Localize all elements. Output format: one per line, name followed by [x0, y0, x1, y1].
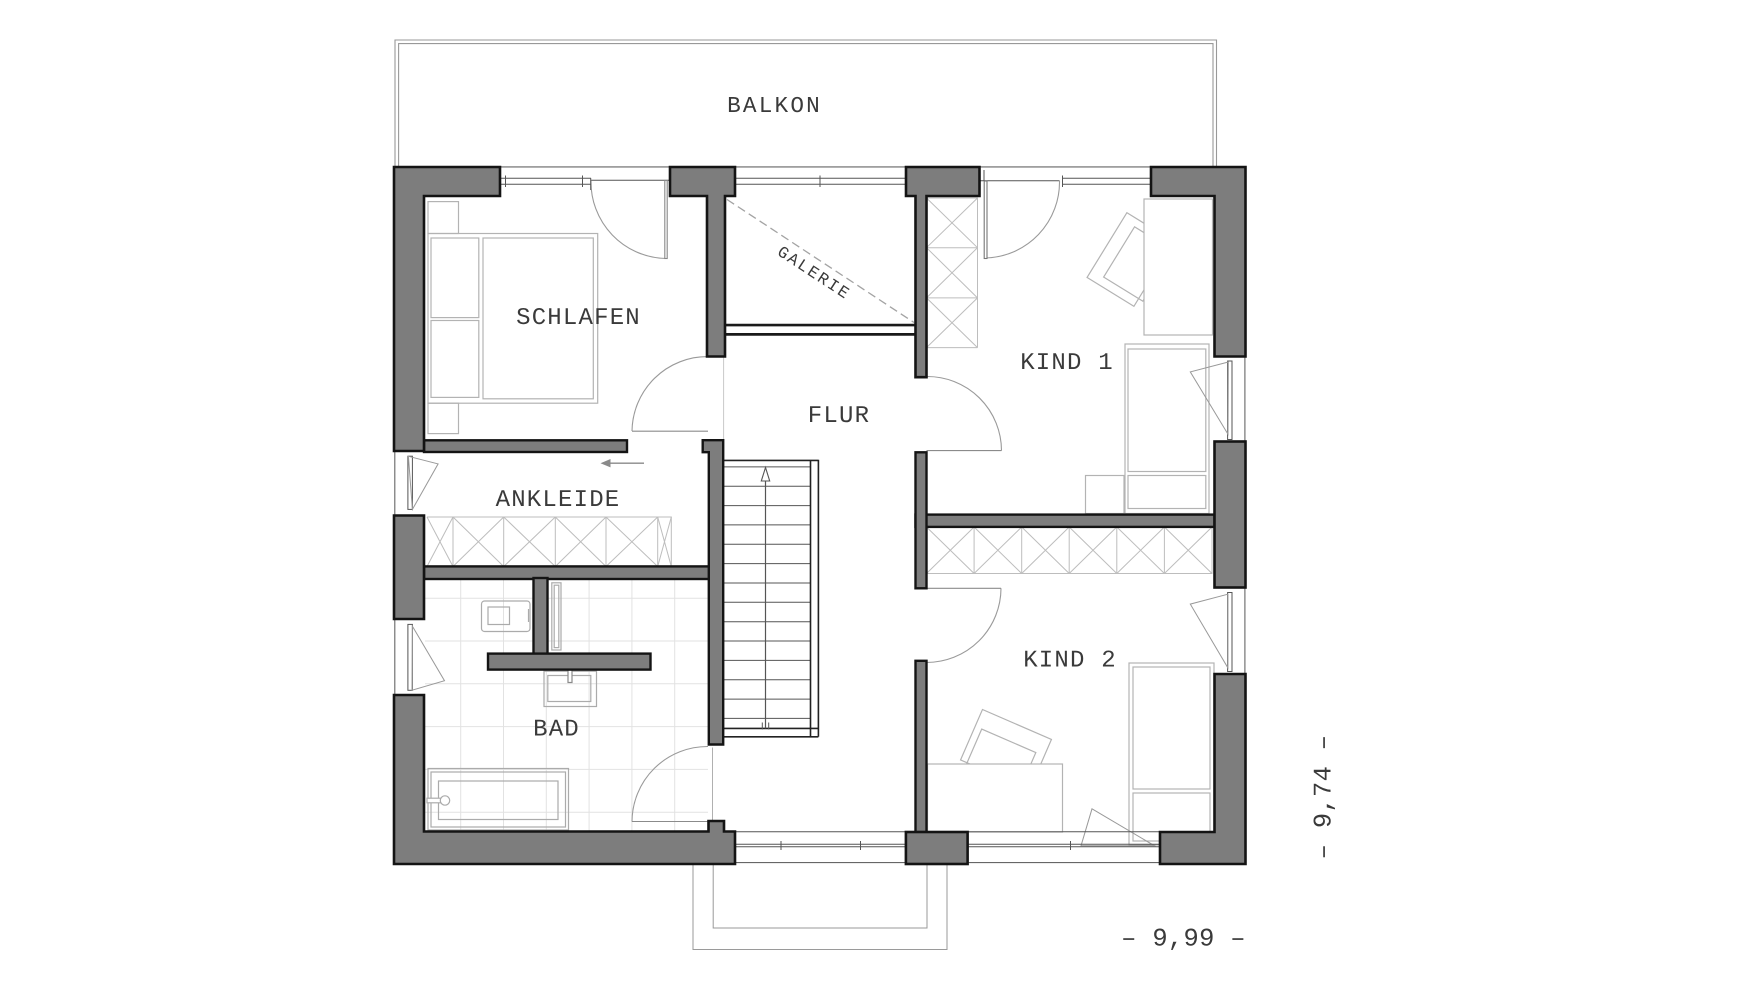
svg-text:BALKON: BALKON — [727, 93, 822, 119]
svg-text:– 9,99 –: – 9,99 – — [1121, 925, 1246, 954]
svg-text:– 9,74 –: – 9,74 – — [1309, 735, 1338, 860]
svg-text:KIND 2: KIND 2 — [1023, 648, 1117, 675]
svg-text:SCHLAFEN: SCHLAFEN — [516, 305, 641, 332]
svg-text:KIND 1: KIND 1 — [1020, 350, 1114, 377]
svg-text:ANKLEIDE: ANKLEIDE — [496, 487, 621, 514]
svg-text:FLUR: FLUR — [808, 403, 870, 430]
svg-text:BAD: BAD — [533, 717, 580, 744]
